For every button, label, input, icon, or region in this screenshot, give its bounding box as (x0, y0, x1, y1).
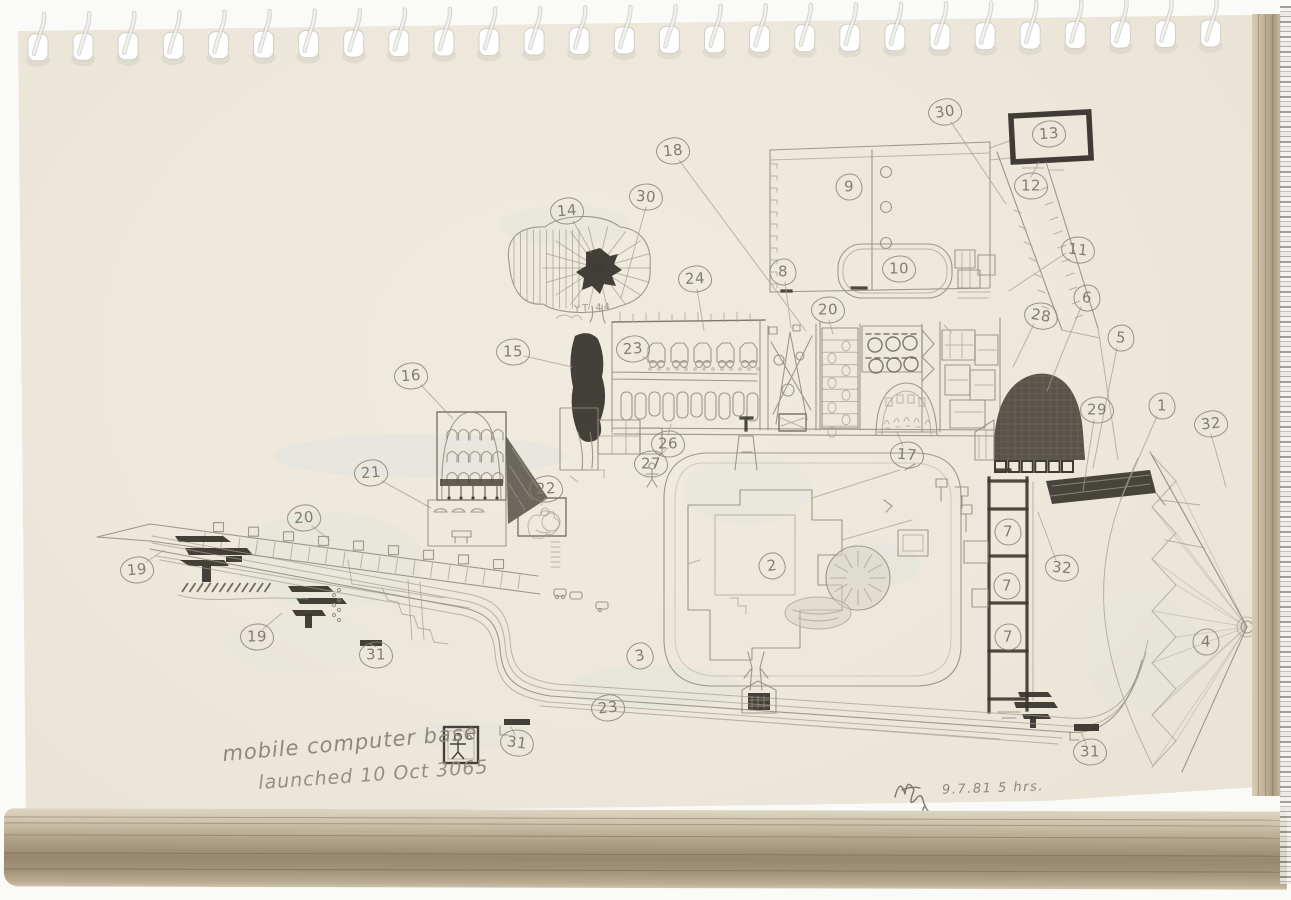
callout-1: 1 (1149, 393, 1176, 420)
callout-8: 8 (770, 259, 797, 286)
callout-31: 31 (359, 642, 393, 669)
spiral-binding (26, 0, 1223, 67)
cell-column (822, 328, 858, 437)
callout-27: 27 (634, 451, 668, 478)
callout-10: 10 (882, 256, 916, 283)
callout-31: 31 (1073, 739, 1107, 766)
vehicle-row (648, 343, 759, 370)
scanned-sketchbook-page: 3013121891430248102011628515231629132262… (0, 0, 1291, 900)
callout-29: 29 (1080, 397, 1114, 424)
pad-ticks (1022, 168, 1064, 170)
tank-section (862, 326, 934, 381)
hatched-dome (975, 372, 1086, 472)
machine-rooms (942, 325, 998, 428)
scanner-edge-noise (1280, 6, 1291, 884)
callout-19: 19 (240, 624, 274, 651)
page-stack-edge (4, 808, 1287, 889)
arched-hall (876, 383, 937, 435)
callout-7: 7 (994, 573, 1021, 600)
callout-7: 7 (995, 519, 1022, 546)
callout-15: 15 (496, 339, 530, 366)
book-fore-edge (1252, 14, 1281, 796)
callout-12: 12 (1014, 173, 1048, 200)
scale-note: 6' (466, 732, 475, 743)
signature-scribble (895, 784, 929, 813)
callout-4: 4 (1193, 629, 1220, 656)
callout-20: 20 (811, 297, 845, 324)
callout-7: 7 (995, 624, 1022, 651)
arched-building-16 (428, 412, 548, 546)
callout-9: 9 (836, 174, 863, 201)
pod-garage-row (621, 392, 758, 421)
tree-note: YT 44 (574, 302, 613, 315)
pencil-sketch (0, 0, 1291, 900)
crane-structure (768, 324, 816, 431)
dark-canopy (1046, 470, 1165, 505)
